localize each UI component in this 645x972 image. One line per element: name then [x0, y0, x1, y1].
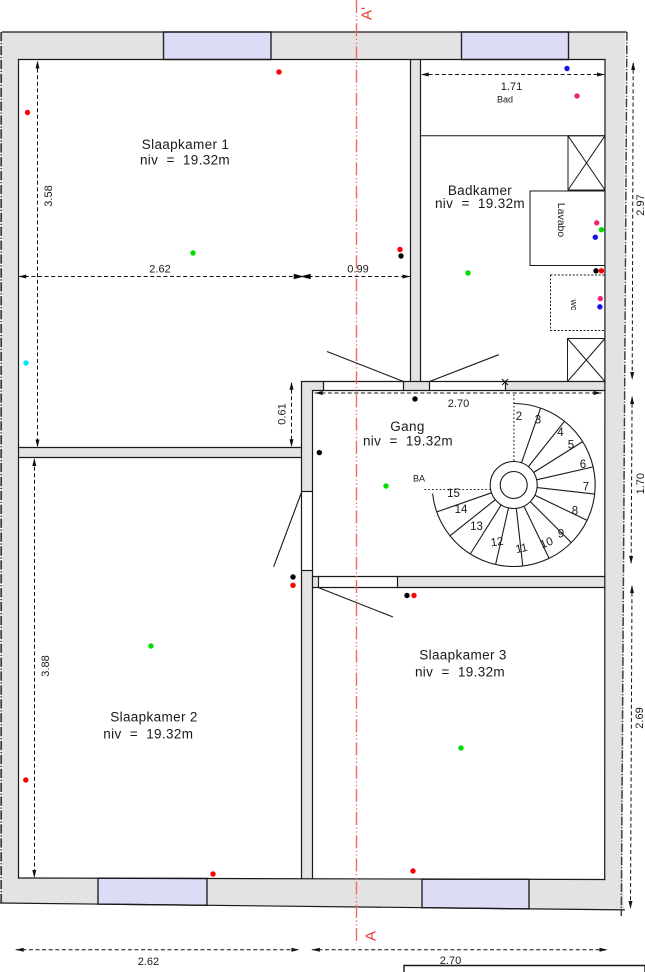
svg-text:niv = 19.32m: niv = 19.32m [435, 196, 525, 211]
svg-text:3.88: 3.88 [40, 655, 52, 676]
svg-text:Slaapkamer 2: Slaapkamer 2 [110, 710, 198, 725]
svg-text:3: 3 [535, 415, 541, 427]
svg-text:2.70: 2.70 [448, 398, 469, 410]
svg-text:15: 15 [447, 488, 460, 500]
svg-text:1.71: 1.71 [501, 81, 522, 93]
svg-text:12: 12 [490, 536, 504, 550]
svg-text:13: 13 [470, 521, 483, 533]
svg-text:Bad: Bad [497, 95, 513, 105]
svg-text:0.61: 0.61 [277, 403, 289, 424]
svg-text:6: 6 [580, 459, 586, 471]
svg-text:7: 7 [583, 482, 589, 494]
svg-text:11: 11 [515, 542, 529, 556]
svg-text:A': A' [359, 7, 376, 20]
svg-text:wc: wc [569, 299, 579, 311]
svg-text:2.62: 2.62 [138, 956, 159, 968]
svg-text:1.70: 1.70 [635, 473, 645, 494]
svg-text:3.58: 3.58 [43, 185, 55, 206]
svg-text:2: 2 [516, 411, 522, 423]
svg-text:5: 5 [568, 440, 574, 452]
svg-text:0.99: 0.99 [347, 263, 368, 275]
svg-text:niv = 19.32m: niv = 19.32m [363, 434, 453, 449]
svg-text:niv = 19.32m: niv = 19.32m [103, 727, 193, 742]
svg-text:A: A [363, 931, 380, 941]
svg-text:niv = 19.32m: niv = 19.32m [415, 665, 505, 680]
svg-text:niv = 19.32m: niv = 19.32m [140, 153, 230, 168]
svg-text:Slaapkamer 3: Slaapkamer 3 [419, 648, 507, 663]
svg-text:14: 14 [455, 504, 468, 516]
svg-text:Slaapkamer 1: Slaapkamer 1 [142, 137, 230, 152]
svg-text:2.69: 2.69 [634, 707, 645, 728]
svg-text:4: 4 [557, 427, 564, 439]
svg-text:Gang: Gang [390, 419, 424, 434]
svg-text:Lavabo: Lavabo [555, 203, 567, 238]
svg-text:8: 8 [572, 506, 578, 518]
svg-text:2.97: 2.97 [635, 194, 645, 215]
svg-text:BA: BA [413, 474, 425, 484]
svg-text:2.62: 2.62 [149, 263, 170, 275]
svg-text:9: 9 [558, 529, 564, 541]
